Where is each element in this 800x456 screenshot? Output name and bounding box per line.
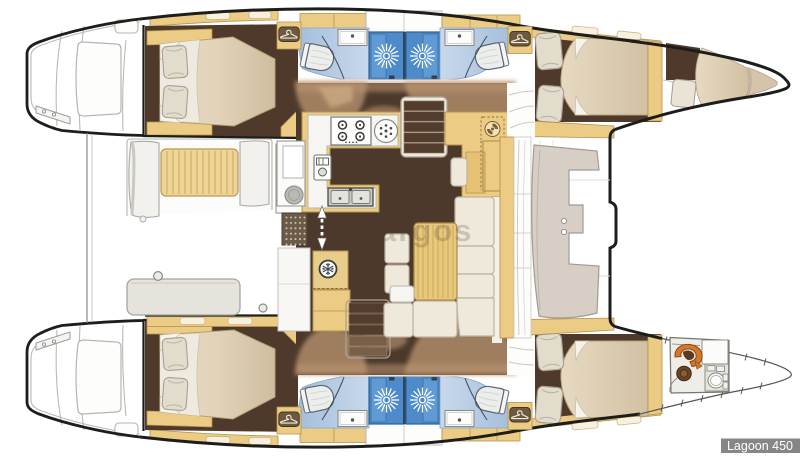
svg-text:Lagoon 450: Lagoon 450 (727, 439, 793, 453)
svg-text:argos: argos (379, 213, 473, 248)
